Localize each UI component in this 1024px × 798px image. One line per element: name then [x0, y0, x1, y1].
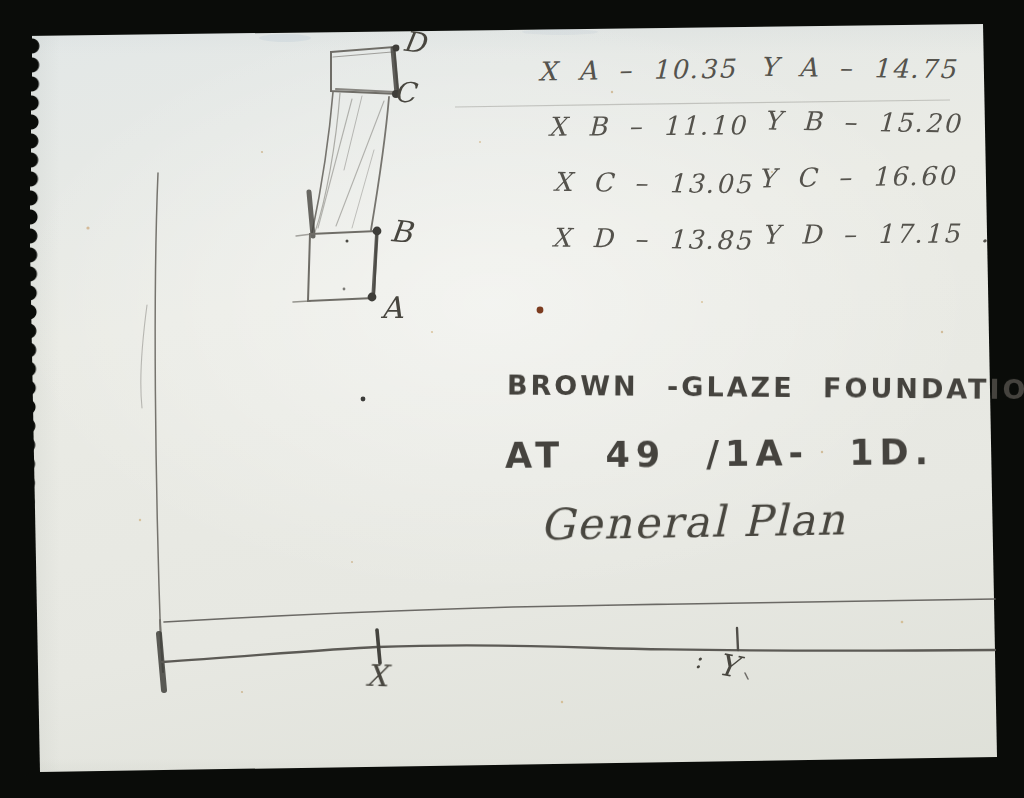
baseline-y-colon: :: [694, 646, 702, 674]
measurement-xb: X B – 11.10: [548, 110, 747, 141]
measurement-ya: Y A – 14.75: [760, 52, 958, 84]
point-label-d: D: [401, 25, 428, 61]
photo-scene: D C B A X : Y X A – 10.35 Y A – 14.75 X …: [0, 0, 1024, 798]
point-label-a: A: [381, 290, 403, 325]
measurement-xa: X A – 10.35: [538, 54, 737, 87]
point-label-c: C: [393, 75, 417, 109]
measurement-yd: Y D – 17.15 .: [762, 218, 991, 250]
baseline-x-label: X: [365, 658, 388, 694]
point-label-b: B: [388, 213, 414, 250]
measurement-xc: X C – 13.05: [553, 167, 753, 199]
caption-title: BROWN -GLAZE FOUNDATIONS: [507, 370, 1024, 406]
measurement-yc: Y C – 16.60: [758, 161, 957, 194]
caption-location: AT 49 /1A- 1D.: [505, 432, 934, 476]
measurement-yb: Y B – 15.20: [764, 105, 962, 138]
caption-subtitle: General Plan: [540, 494, 847, 549]
measurement-xd: X D – 13.85: [552, 222, 753, 255]
